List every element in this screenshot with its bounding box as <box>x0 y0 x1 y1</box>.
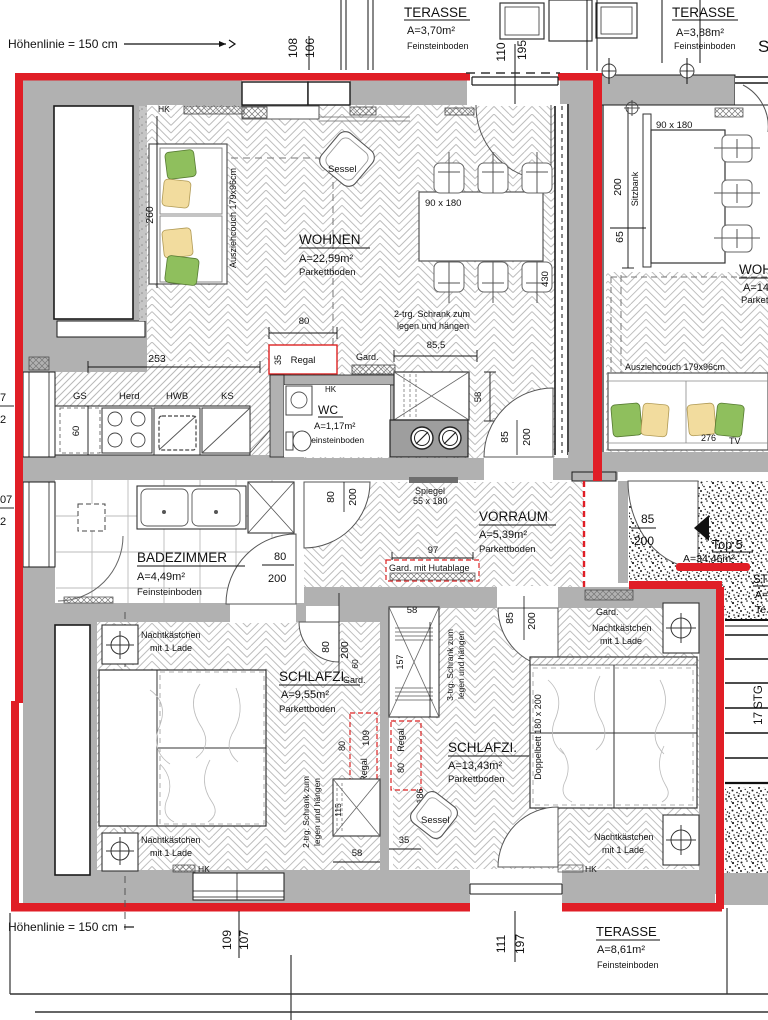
svg-text:85: 85 <box>499 431 511 443</box>
svg-text:200: 200 <box>339 641 351 659</box>
svg-text:200: 200 <box>612 178 624 196</box>
svg-text:WOH: WOH <box>739 262 768 277</box>
svg-text:Te: Te <box>755 604 766 616</box>
svg-text:TERASSE: TERASSE <box>404 5 467 20</box>
svg-text:mit 1 Lade: mit 1 Lade <box>600 636 642 646</box>
svg-text:85: 85 <box>641 512 655 526</box>
svg-text:7: 7 <box>0 392 6 404</box>
svg-text:A=8,61m²: A=8,61m² <box>597 944 645 956</box>
svg-text:Ausziehcouch 179x96cm: Ausziehcouch 179x96cm <box>625 362 725 372</box>
svg-text:TERASSE: TERASSE <box>596 924 657 939</box>
svg-text:Parkettboden: Parkettboden <box>279 704 336 715</box>
svg-text:S: S <box>758 37 768 56</box>
svg-text:legen und hängen: legen und hängen <box>312 778 322 846</box>
svg-text:60: 60 <box>350 659 360 669</box>
svg-text:Höhenlinie = 150 cm: Höhenlinie = 150 cm <box>8 37 118 51</box>
svg-text:A=3,70m²: A=3,70m² <box>407 25 455 37</box>
svg-text:Nachtkästchen: Nachtkästchen <box>592 623 652 633</box>
svg-text:35: 35 <box>273 355 283 365</box>
svg-text:109: 109 <box>220 930 234 950</box>
svg-text:58: 58 <box>407 605 418 616</box>
svg-text:35: 35 <box>399 835 410 846</box>
svg-text:Feinsteinboden: Feinsteinboden <box>137 587 202 598</box>
svg-text:WOHNEN: WOHNEN <box>299 232 361 247</box>
svg-text:WC: WC <box>318 403 338 417</box>
svg-text:Gard.: Gard. <box>596 607 619 617</box>
svg-text:HK: HK <box>325 385 337 394</box>
svg-text:253: 253 <box>148 353 166 365</box>
svg-text:Feinsteinboden: Feinsteinboden <box>407 41 469 51</box>
svg-text:Sessel: Sessel <box>421 815 450 826</box>
svg-text:HK: HK <box>158 104 170 114</box>
svg-text:80: 80 <box>396 763 406 773</box>
svg-text:SCHLAFZI.: SCHLAFZI. <box>279 669 348 684</box>
svg-text:65: 65 <box>614 231 626 243</box>
svg-text:Nachtkästchen: Nachtkästchen <box>141 835 201 845</box>
svg-text:VORRAUM: VORRAUM <box>479 509 548 524</box>
svg-text:BADEZIMMER: BADEZIMMER <box>137 550 227 565</box>
svg-text:2-trg. Schrank zum: 2-trg. Schrank zum <box>301 776 311 848</box>
svg-text:Feinsteinboden: Feinsteinboden <box>306 435 364 445</box>
svg-text:85,5: 85,5 <box>427 340 446 351</box>
svg-text:A=1,17m²: A=1,17m² <box>314 421 355 432</box>
svg-text:mit 1 Lade: mit 1 Lade <box>150 848 192 858</box>
svg-text:2-trg. Schrank zum: 2-trg. Schrank zum <box>394 309 470 319</box>
svg-text:KS: KS <box>221 391 234 402</box>
svg-text:200: 200 <box>634 534 654 548</box>
svg-text:276: 276 <box>701 433 716 443</box>
svg-text:97: 97 <box>428 545 439 556</box>
svg-text:110: 110 <box>494 42 508 61</box>
svg-text:Feinsteinboden: Feinsteinboden <box>674 41 736 51</box>
svg-text:108: 108 <box>286 38 300 58</box>
svg-text:TERASSE: TERASSE <box>672 5 735 20</box>
svg-text:80: 80 <box>299 316 310 327</box>
svg-text:Regal: Regal <box>359 758 369 782</box>
svg-text:mit 1 Lade: mit 1 Lade <box>150 643 192 653</box>
svg-text:80: 80 <box>337 741 347 751</box>
svg-text:Parkettboden: Parkettboden <box>479 544 536 555</box>
svg-text:3-trg. Schrank zum: 3-trg. Schrank zum <box>445 629 455 701</box>
svg-text:Doppelbett 180 x 200: Doppelbett 180 x 200 <box>533 694 543 780</box>
svg-text:157: 157 <box>395 654 405 669</box>
svg-text:ST: ST <box>753 574 768 586</box>
svg-text:07: 07 <box>0 494 12 506</box>
svg-text:Nachtkästchen: Nachtkästchen <box>594 832 654 842</box>
svg-text:90 x 180: 90 x 180 <box>425 198 461 209</box>
svg-text:Feinsteinboden: Feinsteinboden <box>597 960 659 970</box>
svg-text:2: 2 <box>0 414 6 426</box>
svg-text:GS: GS <box>73 391 87 402</box>
svg-text:200: 200 <box>521 428 533 446</box>
svg-text:Sitzbank: Sitzbank <box>630 171 640 206</box>
svg-text:A=: A= <box>755 589 768 601</box>
svg-text:legen und hängen: legen und hängen <box>397 321 469 331</box>
svg-text:200: 200 <box>347 488 359 506</box>
svg-text:58: 58 <box>473 392 484 403</box>
svg-text:85: 85 <box>504 612 516 624</box>
svg-text:Höhenlinie = 150 cm: Höhenlinie = 150 cm <box>8 920 118 934</box>
svg-text:2: 2 <box>0 516 6 528</box>
svg-text:A=9,55m²: A=9,55m² <box>281 689 329 701</box>
svg-text:A=13,43m²: A=13,43m² <box>448 760 502 772</box>
svg-text:200: 200 <box>268 573 286 585</box>
svg-text:195: 195 <box>515 40 529 60</box>
svg-text:80: 80 <box>274 551 286 563</box>
svg-text:60: 60 <box>71 426 82 437</box>
svg-text:106: 106 <box>303 38 317 58</box>
svg-text:Regal: Regal <box>291 355 316 366</box>
svg-text:Regal: Regal <box>396 728 406 752</box>
svg-text:17 STG: 17 STG <box>753 685 765 725</box>
svg-text:58: 58 <box>352 848 363 859</box>
svg-text:HWB: HWB <box>166 391 188 402</box>
svg-text:SCHLAFZI.: SCHLAFZI. <box>448 740 517 755</box>
svg-text:111: 111 <box>494 935 508 954</box>
svg-text:A=22,59m²: A=22,59m² <box>299 253 353 265</box>
svg-text:legen und hängen: legen und hängen <box>456 631 466 699</box>
svg-text:90 x 180: 90 x 180 <box>656 120 692 131</box>
svg-text:A=5,39m²: A=5,39m² <box>479 529 527 541</box>
svg-text:55 x 180: 55 x 180 <box>413 496 448 506</box>
svg-text:Parket: Parket <box>741 295 768 306</box>
svg-text:200: 200 <box>526 612 538 630</box>
svg-text:A=14: A=14 <box>743 282 768 294</box>
svg-text:430: 430 <box>540 271 551 287</box>
svg-text:HK: HK <box>585 864 597 874</box>
svg-text:Gard. mit Hutablage: Gard. mit Hutablage <box>389 563 470 573</box>
svg-text:80: 80 <box>325 491 337 503</box>
svg-text:Parkettboden: Parkettboden <box>299 267 356 278</box>
svg-text:Ausziehcouch 179x96cm: Ausziehcouch 179x96cm <box>228 168 238 268</box>
svg-text:109: 109 <box>361 730 372 746</box>
svg-text:Spiegel: Spiegel <box>415 486 445 496</box>
svg-text:Nachtkästchen: Nachtkästchen <box>141 630 201 640</box>
svg-text:Parkettboden: Parkettboden <box>448 774 505 785</box>
svg-text:TV: TV <box>729 436 741 446</box>
svg-text:Herd: Herd <box>119 391 140 402</box>
svg-text:115: 115 <box>333 803 343 817</box>
svg-text:A=4,49m²: A=4,49m² <box>137 571 185 583</box>
svg-text:Gard.: Gard. <box>356 352 379 362</box>
svg-text:Top 5: Top 5 <box>712 538 743 552</box>
svg-text:Sessel: Sessel <box>328 164 357 175</box>
svg-text:mit 1 Lade: mit 1 Lade <box>602 845 644 855</box>
svg-text:HK: HK <box>198 864 210 874</box>
svg-text:80: 80 <box>320 641 332 653</box>
svg-text:260: 260 <box>144 206 156 224</box>
